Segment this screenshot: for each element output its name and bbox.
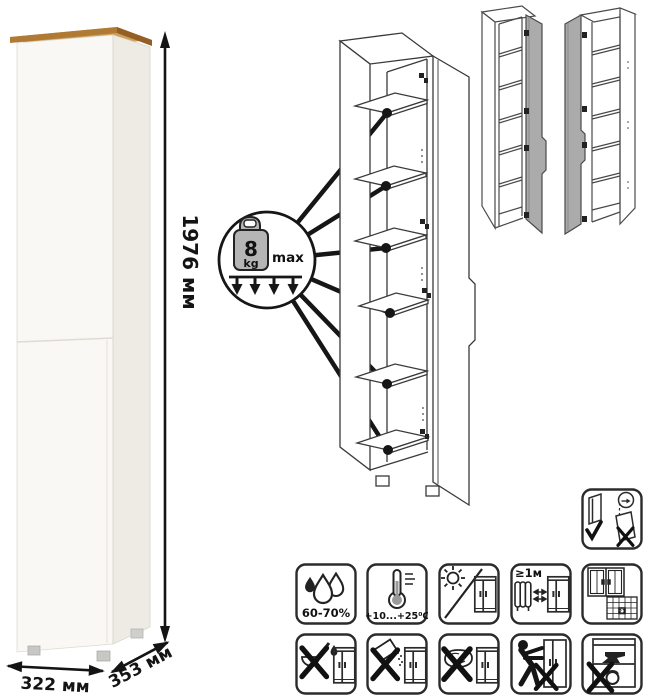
open-window [588, 568, 624, 596]
no-aggressive-liquids-icon [295, 633, 357, 695]
humidity-label: 60-70% [302, 606, 351, 620]
shelf-pin-holes [421, 149, 424, 421]
width-dimension: 322 мм [5, 660, 106, 698]
variant-door-left [565, 8, 635, 234]
distance-label: ≥1м [515, 566, 542, 580]
calendar: 21 [607, 597, 637, 619]
humidity-icon: 60-70% [295, 563, 357, 625]
no-abrasive-powder-icon [366, 633, 428, 695]
product-photo-panel: 1976 мм 322 мм 353 мм [0, 0, 200, 700]
no-pushing-icon [510, 633, 572, 695]
furniture-infographic: 1976 мм 322 мм 353 мм [0, 0, 648, 700]
depth-dimension: 353 мм [105, 637, 175, 693]
no-wet-cleaning-icon [438, 633, 500, 695]
height-label: 1976 мм [178, 214, 200, 309]
max-load-callout: 8 kg max [219, 212, 315, 308]
open-door [433, 56, 475, 505]
load-unit: kg [243, 257, 258, 270]
cabinet-body [17, 35, 150, 661]
variant-shelves [499, 47, 522, 214]
load-max-label: max [272, 250, 304, 266]
heat-source-distance-icon: ≥1м [510, 563, 572, 625]
foot [376, 476, 389, 486]
door-mounting-variants-icon [581, 488, 643, 550]
temperature-label: +10...+25⁰C [366, 611, 428, 622]
kettlebell-icon [607, 671, 619, 684]
shelf-load-diagram: 8 kg max [210, 10, 485, 510]
height-dimension: 1976 мм [160, 31, 200, 643]
hinge-marks [582, 32, 587, 222]
no-overloading-icon [581, 633, 643, 695]
variant-shelves [592, 45, 620, 210]
cabinet-foot [131, 629, 143, 638]
door-variant-drawings [472, 2, 648, 238]
calendar-day: 21 [618, 609, 626, 615]
temperature-icon: +10...+25⁰C [366, 563, 428, 625]
open-cabinet-drawing [340, 33, 475, 505]
variant-door-right [482, 6, 546, 233]
shelf-pointer-dots [381, 108, 395, 455]
width-label: 322 мм [20, 674, 90, 698]
cabinet-foot [97, 651, 110, 661]
cabinet-foot [28, 646, 40, 655]
hinges [419, 73, 431, 439]
foot [426, 486, 439, 496]
ventilation-calendar-icon: 21 [581, 563, 643, 625]
no-direct-sunlight-icon [438, 563, 500, 625]
radiator-icon [515, 582, 531, 611]
